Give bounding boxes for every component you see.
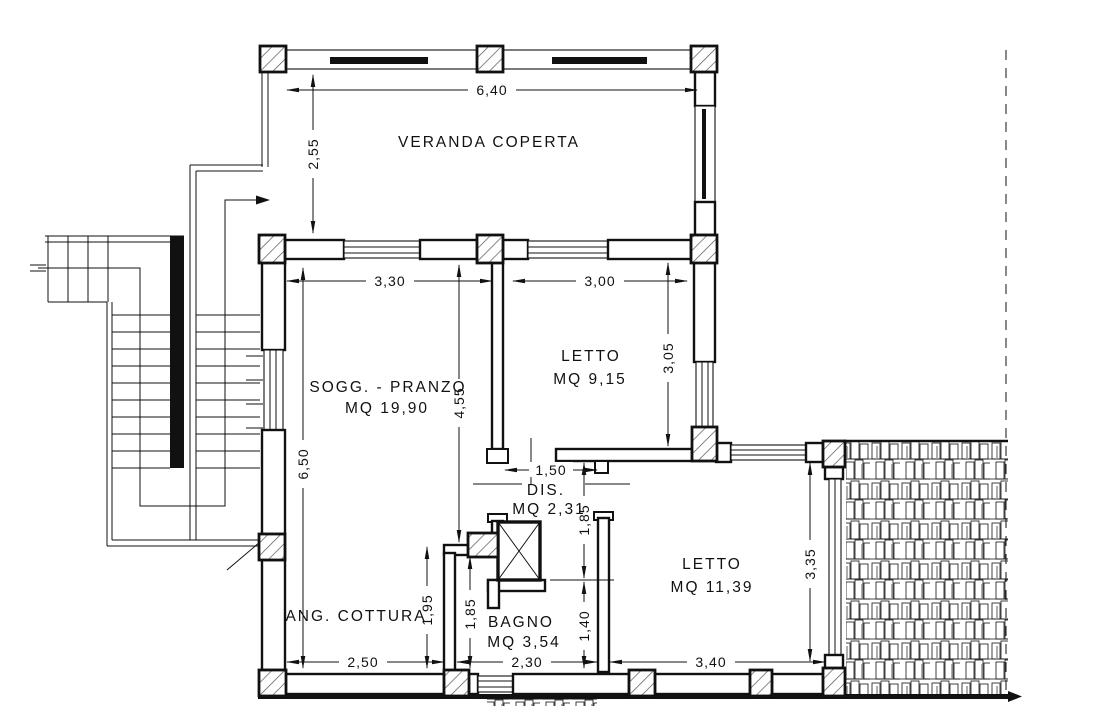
room-label-soggiorno: SOGG. - PRANZO bbox=[309, 379, 466, 396]
room-label-cottura: ANG. COTTURA bbox=[285, 608, 426, 625]
dim-sogg-width: 3,30 bbox=[374, 273, 405, 289]
room-label-letto1: LETTO bbox=[561, 348, 621, 365]
external-stairs bbox=[45, 165, 263, 570]
window bbox=[528, 241, 608, 258]
dim-veranda-depth: 2,55 bbox=[305, 138, 321, 169]
shaft bbox=[498, 522, 540, 580]
window bbox=[478, 676, 513, 692]
roof-tiles-bottom-strip bbox=[487, 699, 597, 706]
room-label-letto2: LETTO bbox=[682, 556, 742, 573]
pillar bbox=[477, 46, 503, 72]
dim-letto2-width: 3,40 bbox=[695, 654, 726, 670]
pillar bbox=[823, 441, 845, 467]
floor-plan-sheet: 6,40 2,55 3,30 3,00 3,05 4,55 6,50 1,50 … bbox=[0, 0, 1093, 706]
pillar bbox=[444, 670, 469, 696]
floor-plan-svg: 6,40 2,55 3,30 3,00 3,05 4,55 6,50 1,50 … bbox=[0, 0, 1093, 706]
room-label-dis: DIS. bbox=[527, 482, 565, 499]
pillar bbox=[259, 670, 286, 696]
room-area-bagno: MQ 3,54 bbox=[487, 634, 560, 651]
pillar bbox=[477, 235, 503, 263]
pillar bbox=[823, 668, 845, 696]
pillar bbox=[750, 670, 772, 696]
window bbox=[829, 479, 841, 655]
dim-bagno-width: 2,30 bbox=[511, 654, 542, 670]
dim-letto1-width: 3,00 bbox=[584, 273, 615, 289]
entry-arrow-icon bbox=[256, 196, 270, 205]
pillar bbox=[259, 534, 285, 560]
room-area-letto2: MQ 11,39 bbox=[671, 579, 754, 596]
room-label-veranda: VERANDA COPERTA bbox=[398, 134, 580, 151]
dim-letto1-depth: 3,05 bbox=[660, 342, 676, 373]
room-label-bagno: BAGNO bbox=[488, 614, 554, 631]
dim-cottura-width: 2,50 bbox=[347, 654, 378, 670]
pillar bbox=[629, 670, 655, 696]
room-area-soggiorno: MQ 19,90 bbox=[345, 400, 429, 417]
window bbox=[696, 362, 713, 427]
window bbox=[731, 445, 806, 460]
stair-treads-left bbox=[112, 315, 170, 468]
dim-bagno-depth: 1,85 bbox=[462, 598, 478, 629]
pillar bbox=[691, 235, 717, 263]
window bbox=[344, 241, 420, 258]
pillar bbox=[259, 235, 285, 263]
stair-treads-right bbox=[196, 315, 260, 468]
dim-house-depth: 6,50 bbox=[295, 448, 311, 479]
dim-veranda-width: 6,40 bbox=[476, 82, 507, 98]
dim-dis-width: 1,50 bbox=[535, 462, 566, 478]
pillar bbox=[260, 46, 286, 72]
ground-arrow-icon bbox=[1008, 691, 1022, 702]
dim-letto2-depth: 3,35 bbox=[802, 548, 818, 579]
pillar bbox=[692, 427, 717, 461]
room-area-dis: MQ 2,31 bbox=[512, 501, 585, 518]
stair-center-wall bbox=[170, 236, 184, 468]
dim-bagno-door: 1,40 bbox=[576, 610, 592, 641]
pillar bbox=[691, 46, 717, 72]
room-area-letto1: MQ 9,15 bbox=[553, 371, 626, 388]
pillar bbox=[468, 533, 498, 557]
window bbox=[246, 350, 283, 430]
roof-tiles-area bbox=[487, 441, 1008, 706]
